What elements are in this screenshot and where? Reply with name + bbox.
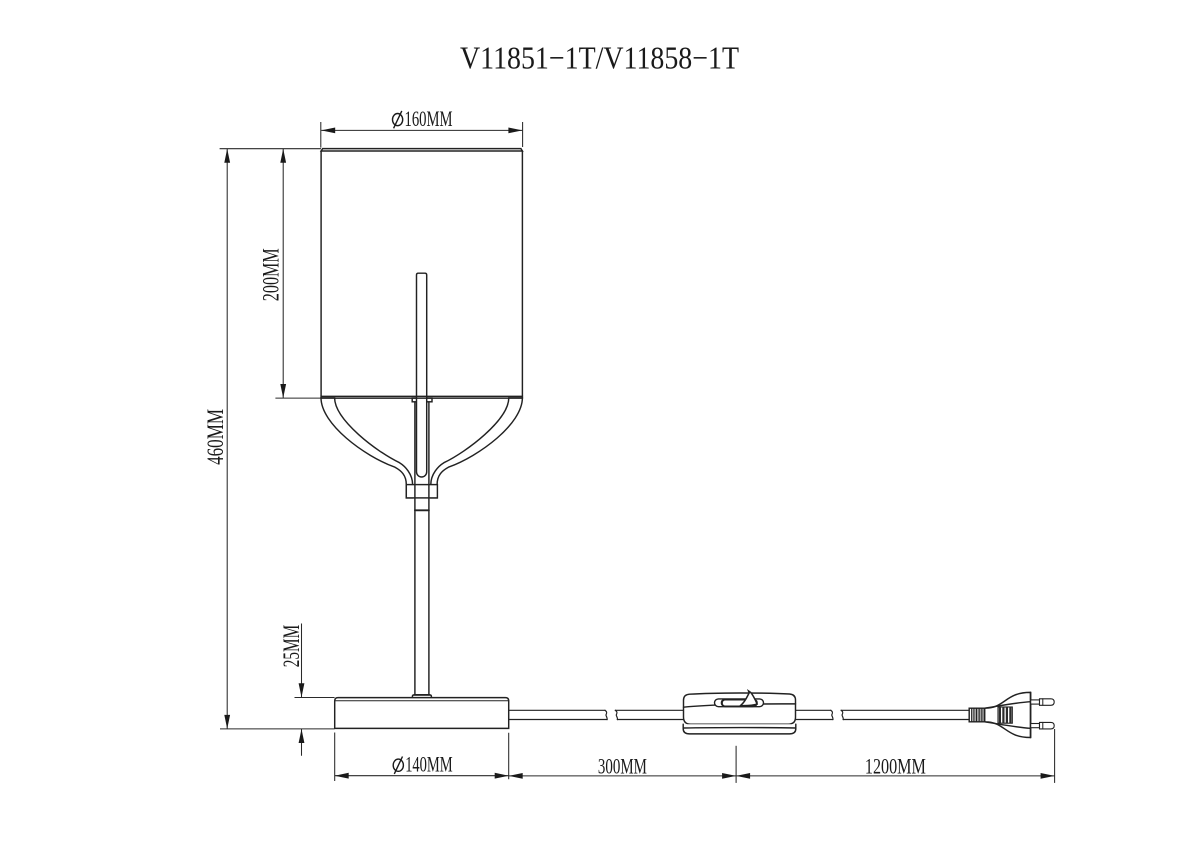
svg-text:1200MM: 1200MM — [865, 753, 926, 778]
svg-text:160MM: 160MM — [405, 106, 453, 131]
svg-text:200MM: 200MM — [258, 248, 284, 301]
svg-text:300MM: 300MM — [598, 753, 647, 778]
svg-text:25MM: 25MM — [279, 625, 305, 668]
svg-text:V11851−1T/V11858−1T: V11851−1T/V11858−1T — [460, 40, 739, 76]
svg-text:460MM: 460MM — [203, 409, 229, 465]
svg-text:140MM: 140MM — [405, 752, 453, 777]
